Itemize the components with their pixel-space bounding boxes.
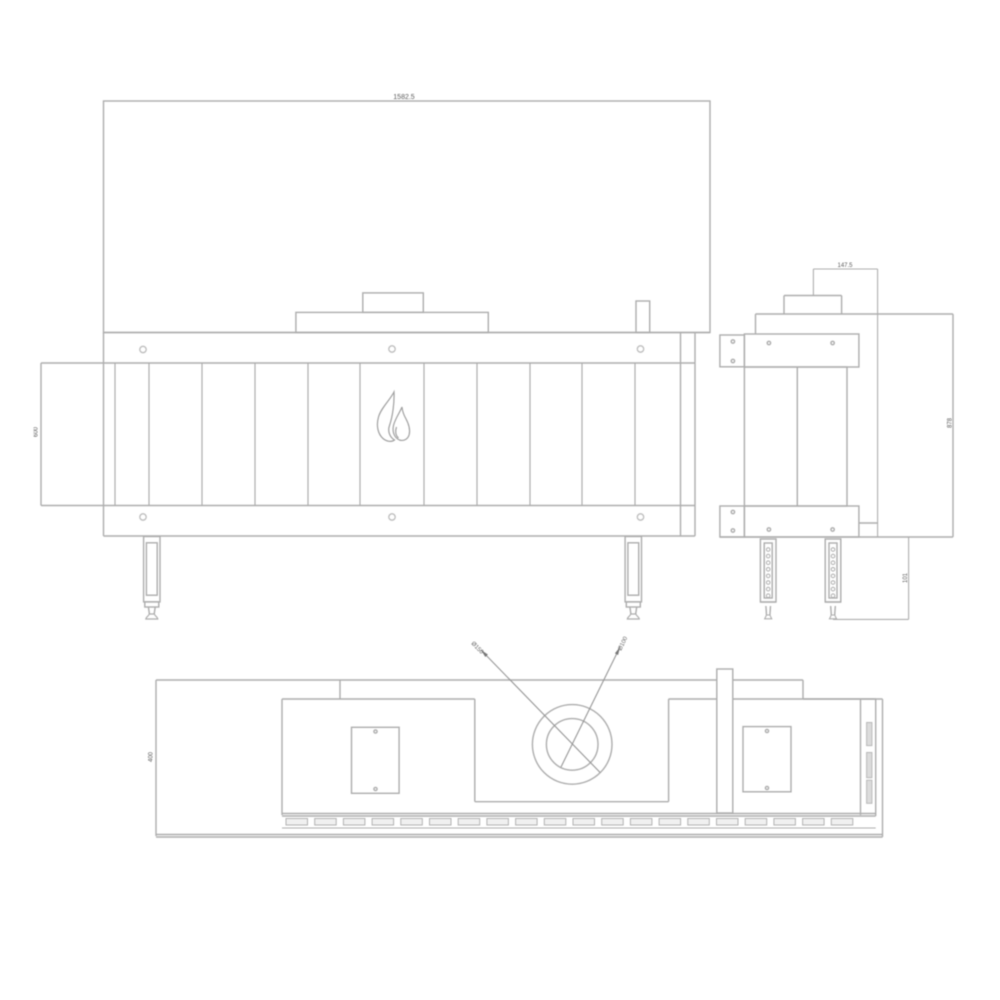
svg-text:1582.5: 1582.5 [393,94,415,101]
svg-text:Ø100: Ø100 [617,635,629,651]
svg-text:878: 878 [948,417,954,428]
svg-text:101: 101 [903,572,909,583]
svg-text:400: 400 [149,751,155,762]
svg-text:Ø150: Ø150 [470,641,485,656]
svg-text:147.5: 147.5 [837,263,853,269]
svg-text:600: 600 [34,426,40,437]
